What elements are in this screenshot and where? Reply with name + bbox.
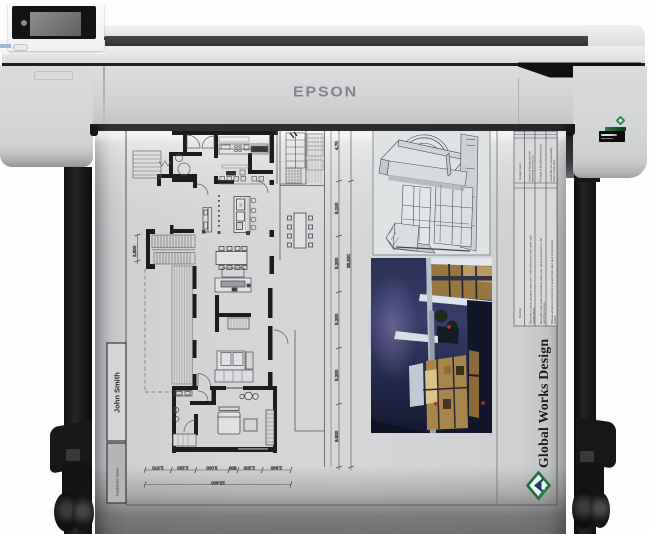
svg-text:5.200: 5.200: [334, 257, 339, 269]
svg-text:5.200: 5.200: [334, 369, 339, 381]
svg-text:30: 30: [238, 202, 243, 207]
svg-text:construction: construction: [532, 307, 536, 324]
svg-text:painting process: painting process: [542, 302, 546, 324]
svg-text:3.000: 3.000: [206, 466, 218, 471]
svg-text:38.200: 38.200: [346, 254, 351, 268]
svg-text:2.800: 2.800: [132, 245, 137, 257]
svg-text:check of each point: check of each point: [552, 159, 556, 182]
svg-text:4.70: 4.70: [334, 141, 339, 150]
svg-text:ended: ended: [553, 315, 557, 324]
svg-text:Global Works Design: Global Works Design: [536, 339, 551, 468]
svg-text:5.200: 5.200: [334, 313, 339, 325]
svg-text:2.370: 2.370: [152, 466, 164, 471]
svg-text:Customer name: Customer name: [115, 467, 120, 496]
svg-text:5.100: 5.100: [334, 202, 339, 214]
svg-text:reinforcing rod was lost: reinforcing rod was lost: [531, 155, 535, 182]
svg-text:2.200: 2.200: [177, 466, 189, 471]
svg-text:Notizen: Notizen: [518, 307, 522, 318]
svg-text:Please advance to the next pro: Please advance to the next process that …: [550, 240, 554, 324]
svg-text:John Smith: John Smith: [113, 372, 122, 413]
svg-text:800: 800: [228, 466, 236, 471]
svg-text:13.400: 13.400: [211, 481, 225, 486]
svg-text:Design point: Design point: [518, 163, 522, 180]
svg-text:2.840: 2.840: [270, 466, 282, 471]
svg-text:2.200: 2.200: [243, 466, 255, 471]
svg-text:9.600: 9.600: [334, 430, 339, 442]
svg-text:The fault of the builder/const: The fault of the builder/constructi: [539, 144, 543, 182]
